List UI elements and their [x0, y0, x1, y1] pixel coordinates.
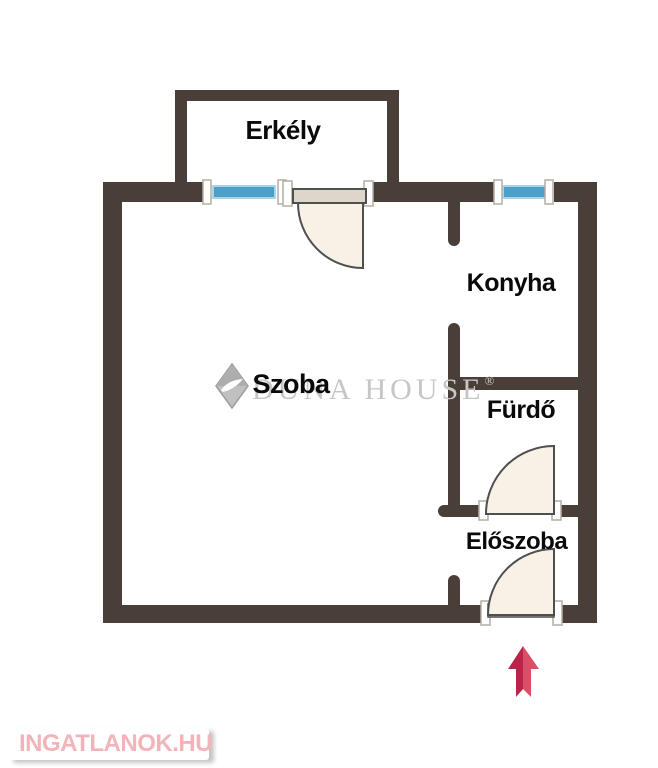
balcony-door-leaf	[293, 189, 366, 203]
room-label-furdo: Fürdő	[441, 396, 601, 425]
partition-szoba-konyha-top-stub	[448, 202, 460, 246]
entrance-door-leaf	[488, 604, 554, 617]
entrance-door-jamb	[553, 601, 562, 625]
bathroom-door-swing	[486, 446, 554, 514]
room-label-szoba: Szoba	[191, 369, 391, 400]
szoba-window	[212, 185, 276, 199]
registered-mark: ®	[485, 373, 495, 388]
floorplan-canvas: DUNA HOUSE® Erkély Szoba Konyha Fürdő El…	[0, 0, 658, 768]
ingatlanok-logo: INGATLANOK.HU	[8, 728, 209, 760]
wall-top-middle-segment	[372, 182, 498, 202]
partition-szoba-eloszoba-stub	[448, 575, 460, 608]
room-label-erkely: Erkély	[183, 115, 383, 146]
wall-furdo-eloszoba-left	[438, 505, 483, 517]
bathroom-door-jamb	[552, 501, 561, 520]
room-label-eloszoba: Előszoba	[424, 528, 609, 556]
wall-bottom-right-segment	[562, 605, 597, 623]
wall-bottom-left-segment	[103, 605, 484, 623]
ingatlanok-logo-text: INGATLANOK.HU	[19, 730, 212, 758]
wall-left	[103, 182, 122, 623]
wall-furdo-eloszoba-right	[561, 505, 597, 517]
room-label-konyha: Konyha	[431, 269, 591, 298]
balcony-wall-top	[175, 90, 399, 101]
balcony-door-swing	[298, 203, 363, 268]
konyha-window	[502, 185, 548, 199]
entrance-arrow-icon	[506, 644, 542, 700]
entrance-door-swing	[488, 549, 554, 615]
